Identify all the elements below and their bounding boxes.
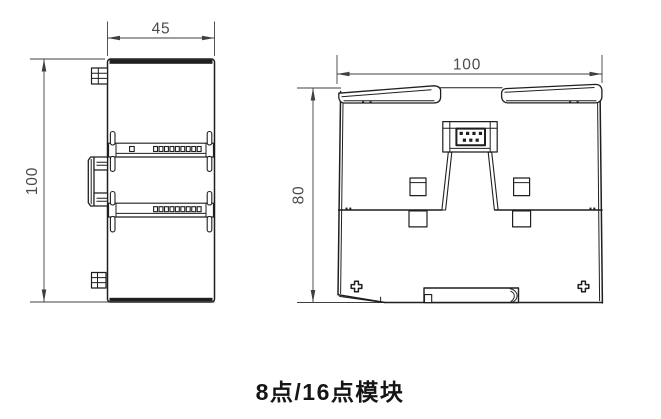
socket-pins-bottom-row bbox=[463, 139, 479, 142]
rear-view-mid-seam bbox=[339, 208, 602, 210]
terminal-slot-single bbox=[130, 147, 135, 152]
rear-view: 100 80 bbox=[291, 55, 604, 303]
rear-view-width-label: 100 bbox=[453, 57, 481, 74]
latch-hook bbox=[207, 216, 212, 232]
latch-post bbox=[207, 192, 212, 206]
rear-view-right-flap bbox=[502, 84, 602, 103]
rear-view-bus-connector bbox=[442, 122, 498, 210]
rear-view-height-label: 80 bbox=[291, 186, 308, 205]
side-view-bottom-plug bbox=[92, 273, 107, 289]
caption-text: 8点/16点模块 bbox=[90, 373, 570, 407]
side-view-width-dimension: 45 bbox=[108, 21, 215, 57]
rear-view-lower-tabs bbox=[409, 211, 531, 227]
drawing-canvas: 100 45 bbox=[0, 0, 661, 419]
phillips-screw-icon bbox=[351, 281, 362, 292]
phillips-screw-icon bbox=[578, 281, 589, 292]
latch-post bbox=[110, 192, 115, 206]
rear-view-body bbox=[338, 87, 602, 304]
dimension-drawing: 100 45 bbox=[0, 0, 661, 419]
rear-view-left-flap bbox=[339, 86, 441, 103]
latch-post bbox=[110, 132, 115, 146]
side-view-body bbox=[108, 59, 215, 302]
side-view: 100 45 bbox=[24, 21, 215, 303]
rear-view-width-dimension: 100 bbox=[337, 55, 602, 84]
latch-hook bbox=[110, 156, 115, 171]
side-view-width-label: 45 bbox=[152, 21, 171, 38]
side-view-bus-connector bbox=[88, 157, 107, 206]
side-view-top-plug bbox=[92, 68, 108, 84]
pin-socket bbox=[456, 129, 485, 146]
latch-post bbox=[207, 132, 212, 146]
rear-view-upper-holes bbox=[410, 178, 530, 196]
side-view-height-label: 100 bbox=[24, 167, 41, 195]
terminal-slot-row-lower bbox=[154, 207, 201, 212]
terminal-slot-row-upper bbox=[154, 147, 201, 152]
din-rail-clip bbox=[424, 288, 519, 303]
latch-hook bbox=[207, 156, 212, 171]
latch-hook bbox=[110, 216, 115, 232]
